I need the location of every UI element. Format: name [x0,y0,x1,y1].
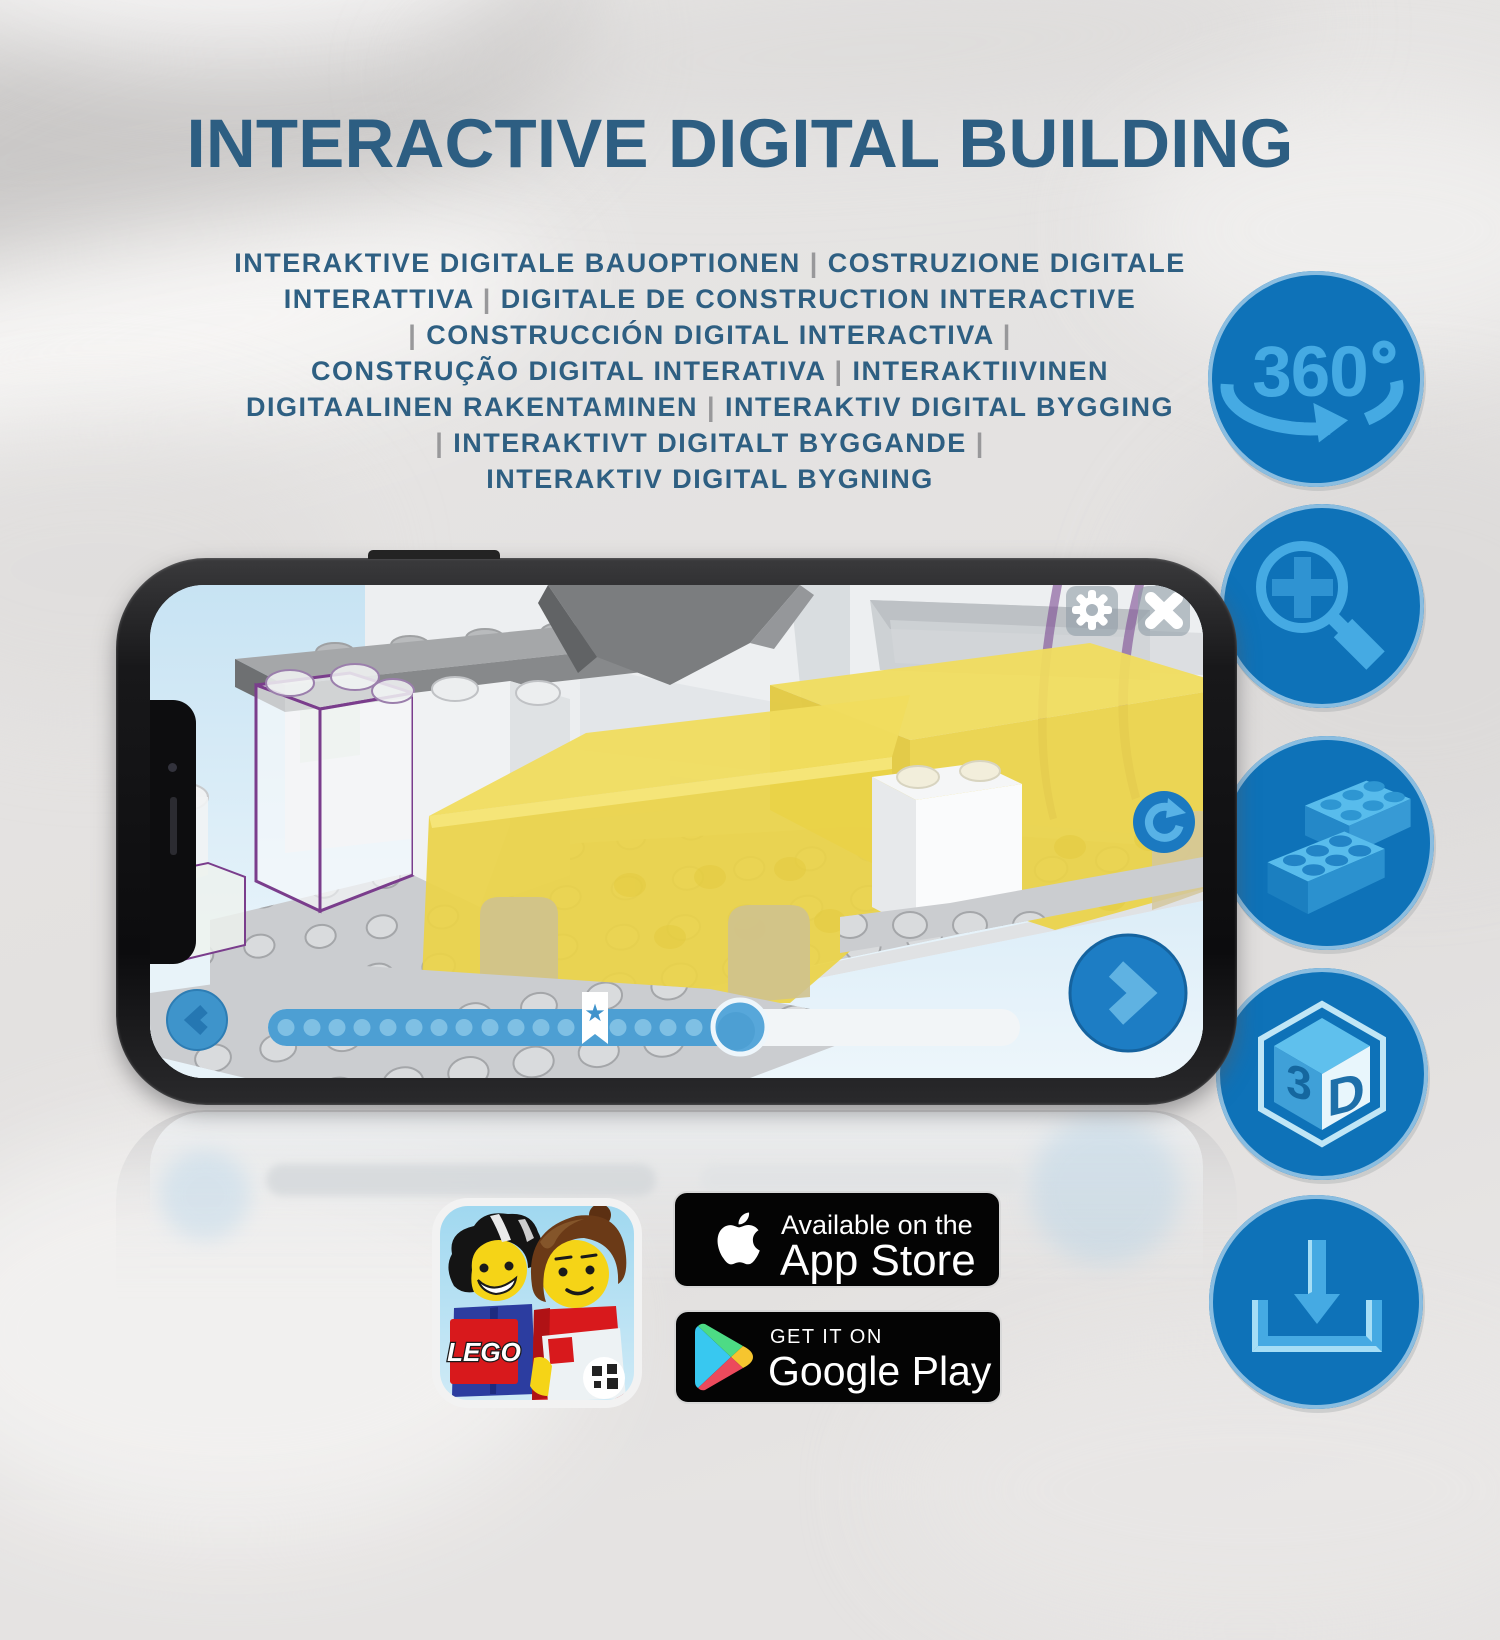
svg-text:Google Play: Google Play [768,1348,992,1394]
svg-text:App Store: App Store [780,1236,976,1285]
svg-text:LEGO: LEGO [447,1337,521,1367]
svg-text:★: ★ [584,1000,606,1027]
svg-text:D: D [1327,1061,1365,1128]
svg-text:GET IT ON: GET IT ON [770,1326,883,1348]
svg-text:3: 3 [1286,1054,1312,1112]
